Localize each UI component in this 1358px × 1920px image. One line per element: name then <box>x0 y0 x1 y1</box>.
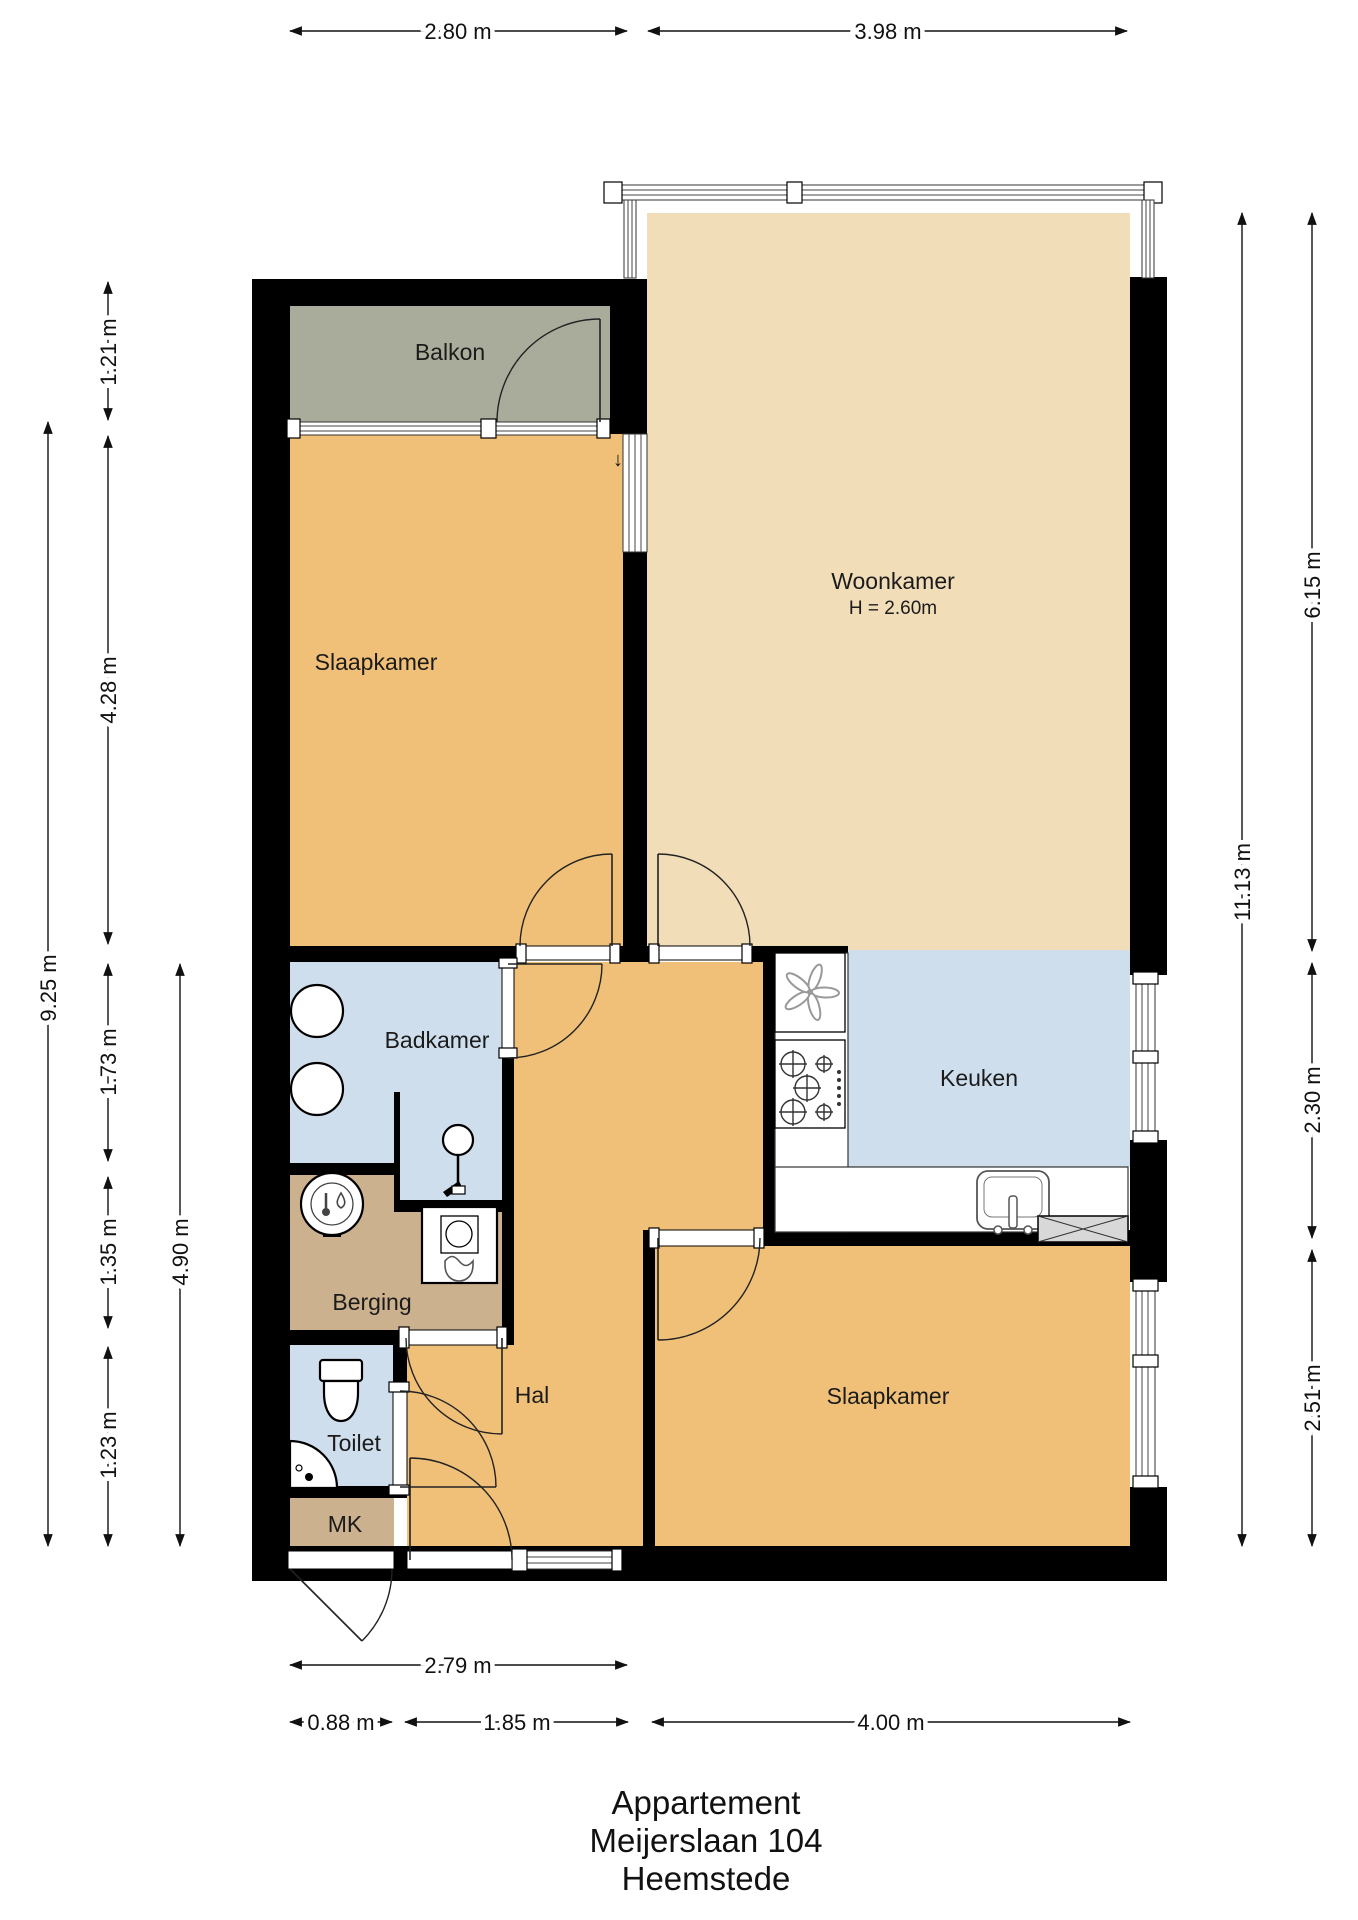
dim-left-balcony: 1.21 m <box>96 318 121 385</box>
dim-bottom-mk: 0.88 m <box>307 1710 374 1735</box>
dim-top-right: 3.98 m <box>854 19 921 44</box>
shaft-icon <box>1038 1216 1128 1242</box>
dim-left-storage: 1.35 m <box>96 1218 121 1285</box>
floorplan-page: Balkon Slaapkamer Woonkamer H = 2.60m Ba… <box>0 0 1358 1920</box>
dim-right-living: 6.15 m <box>1300 551 1325 618</box>
dim-right-kitchen: 2.30 m <box>1300 1066 1325 1133</box>
badkamer-label: Badkamer <box>385 1027 490 1053</box>
hal-floor-lower <box>407 1345 643 1546</box>
bathroom-sink-icon <box>291 1063 343 1115</box>
hal-south-window <box>512 1549 622 1571</box>
keuken-label: Keuken <box>940 1065 1018 1091</box>
title-line-3: Heemstede <box>622 1860 791 1897</box>
bathroom-sink-icon <box>291 985 343 1037</box>
toilet-label: Toilet <box>327 1430 381 1456</box>
dim-left-lower-total: 4.90 m <box>168 1218 193 1285</box>
washing-machine-icon <box>422 1207 497 1283</box>
plan-title: Appartement Meijerslaan 104 Heemstede <box>590 1784 823 1897</box>
keuken-floor <box>848 950 1130 1167</box>
extractor-fan-icon <box>775 953 845 1032</box>
stove-icon <box>775 1040 845 1128</box>
title-line-2: Meijerslaan 104 <box>590 1822 823 1859</box>
room-floors <box>290 213 1130 1546</box>
berging-label: Berging <box>332 1289 411 1315</box>
title-line-1: Appartement <box>612 1784 801 1821</box>
dim-right-total: 11.13 m <box>1230 843 1255 921</box>
balkon-window <box>287 419 610 438</box>
entry-arrow-glyph: ↓ <box>613 449 623 471</box>
mk-door <box>288 1551 394 1641</box>
dim-bottom-hall-total: 2.79 m <box>424 1653 491 1678</box>
slaapkamer1-floor <box>290 434 623 946</box>
slaapkamer1-label: Slaapkamer <box>315 649 438 675</box>
balkon-label: Balkon <box>415 339 485 365</box>
dim-left-bathroom: 1.73 m <box>96 1028 121 1095</box>
woonkamer-height-label: H = 2.60m <box>849 598 937 619</box>
slaapkamer2-label: Slaapkamer <box>827 1383 950 1409</box>
slaapkamer2-east-window <box>1133 1279 1158 1488</box>
dim-top-left: 2.80 m <box>424 19 491 44</box>
slaapkamer1-interior-window <box>623 434 647 552</box>
dim-right-bedroom2: 2.51 m <box>1300 1364 1325 1431</box>
hal-floor-upper <box>514 962 763 1230</box>
dim-bottom-bedroom2: 4.00 m <box>857 1710 924 1735</box>
floorplan-svg: Balkon Slaapkamer Woonkamer H = 2.60m Ba… <box>0 0 1358 1920</box>
mk-label: MK <box>328 1511 363 1537</box>
dim-left-bedroom1: 4.28 m <box>96 656 121 723</box>
keuken-east-window <box>1133 972 1158 1143</box>
woonkamer-label: Woonkamer <box>831 568 955 594</box>
dim-bottom-hal: 1.85 m <box>483 1710 550 1735</box>
dim-left-total: 9.25 m <box>36 954 61 1021</box>
hal-label: Hal <box>515 1382 550 1408</box>
badkamer-shower-floor <box>400 1163 502 1200</box>
hal-floor-mid <box>514 1230 643 1345</box>
dim-left-toilet: 1.23 m <box>96 1411 121 1478</box>
